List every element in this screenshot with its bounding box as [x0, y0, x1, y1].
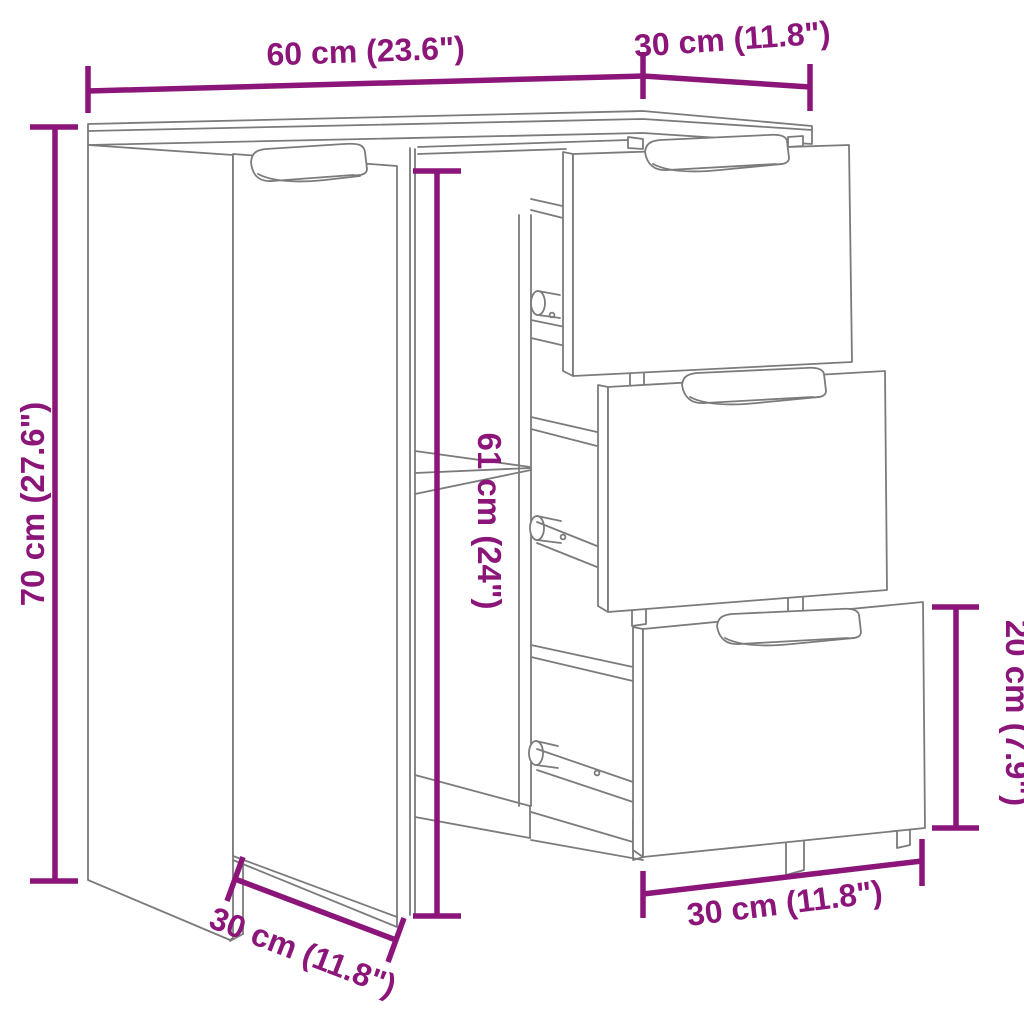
depth-bottom-label: 30 cm (11.8") — [205, 900, 401, 1004]
drawer-width-label: 30 cm (11.8") — [685, 873, 885, 933]
dimension-depth-top — [643, 64, 810, 111]
drawer-1 — [563, 135, 852, 376]
drawer-1-handle — [645, 135, 789, 172]
interior-height-label: 61 cm (24") — [471, 432, 508, 609]
dimension-interior-height — [413, 171, 461, 916]
cabinet-door — [230, 144, 397, 941]
drawer-height-label: 20 cm (7.9") — [999, 620, 1024, 806]
depth-top-label: 30 cm (11.8") — [633, 14, 832, 64]
product-dimension-diagram: 60 cm (23.6") 30 cm (11.8") 70 cm (27.6"… — [0, 0, 1024, 1024]
width-top-label: 60 cm (23.6") — [266, 30, 466, 73]
height-left-label: 70 cm (27.6") — [14, 402, 51, 607]
door-handle — [251, 144, 367, 182]
drawer-2 — [598, 368, 887, 612]
dimension-drawer-height — [932, 607, 979, 828]
drawer-3 — [633, 602, 925, 857]
cabinet-side-panel — [88, 145, 233, 940]
drawer-2-handle — [682, 368, 826, 405]
drawer-3-handle — [717, 609, 861, 646]
cabinet-line-drawing: 60 cm (23.6") 30 cm (11.8") 70 cm (27.6"… — [0, 0, 1024, 1024]
